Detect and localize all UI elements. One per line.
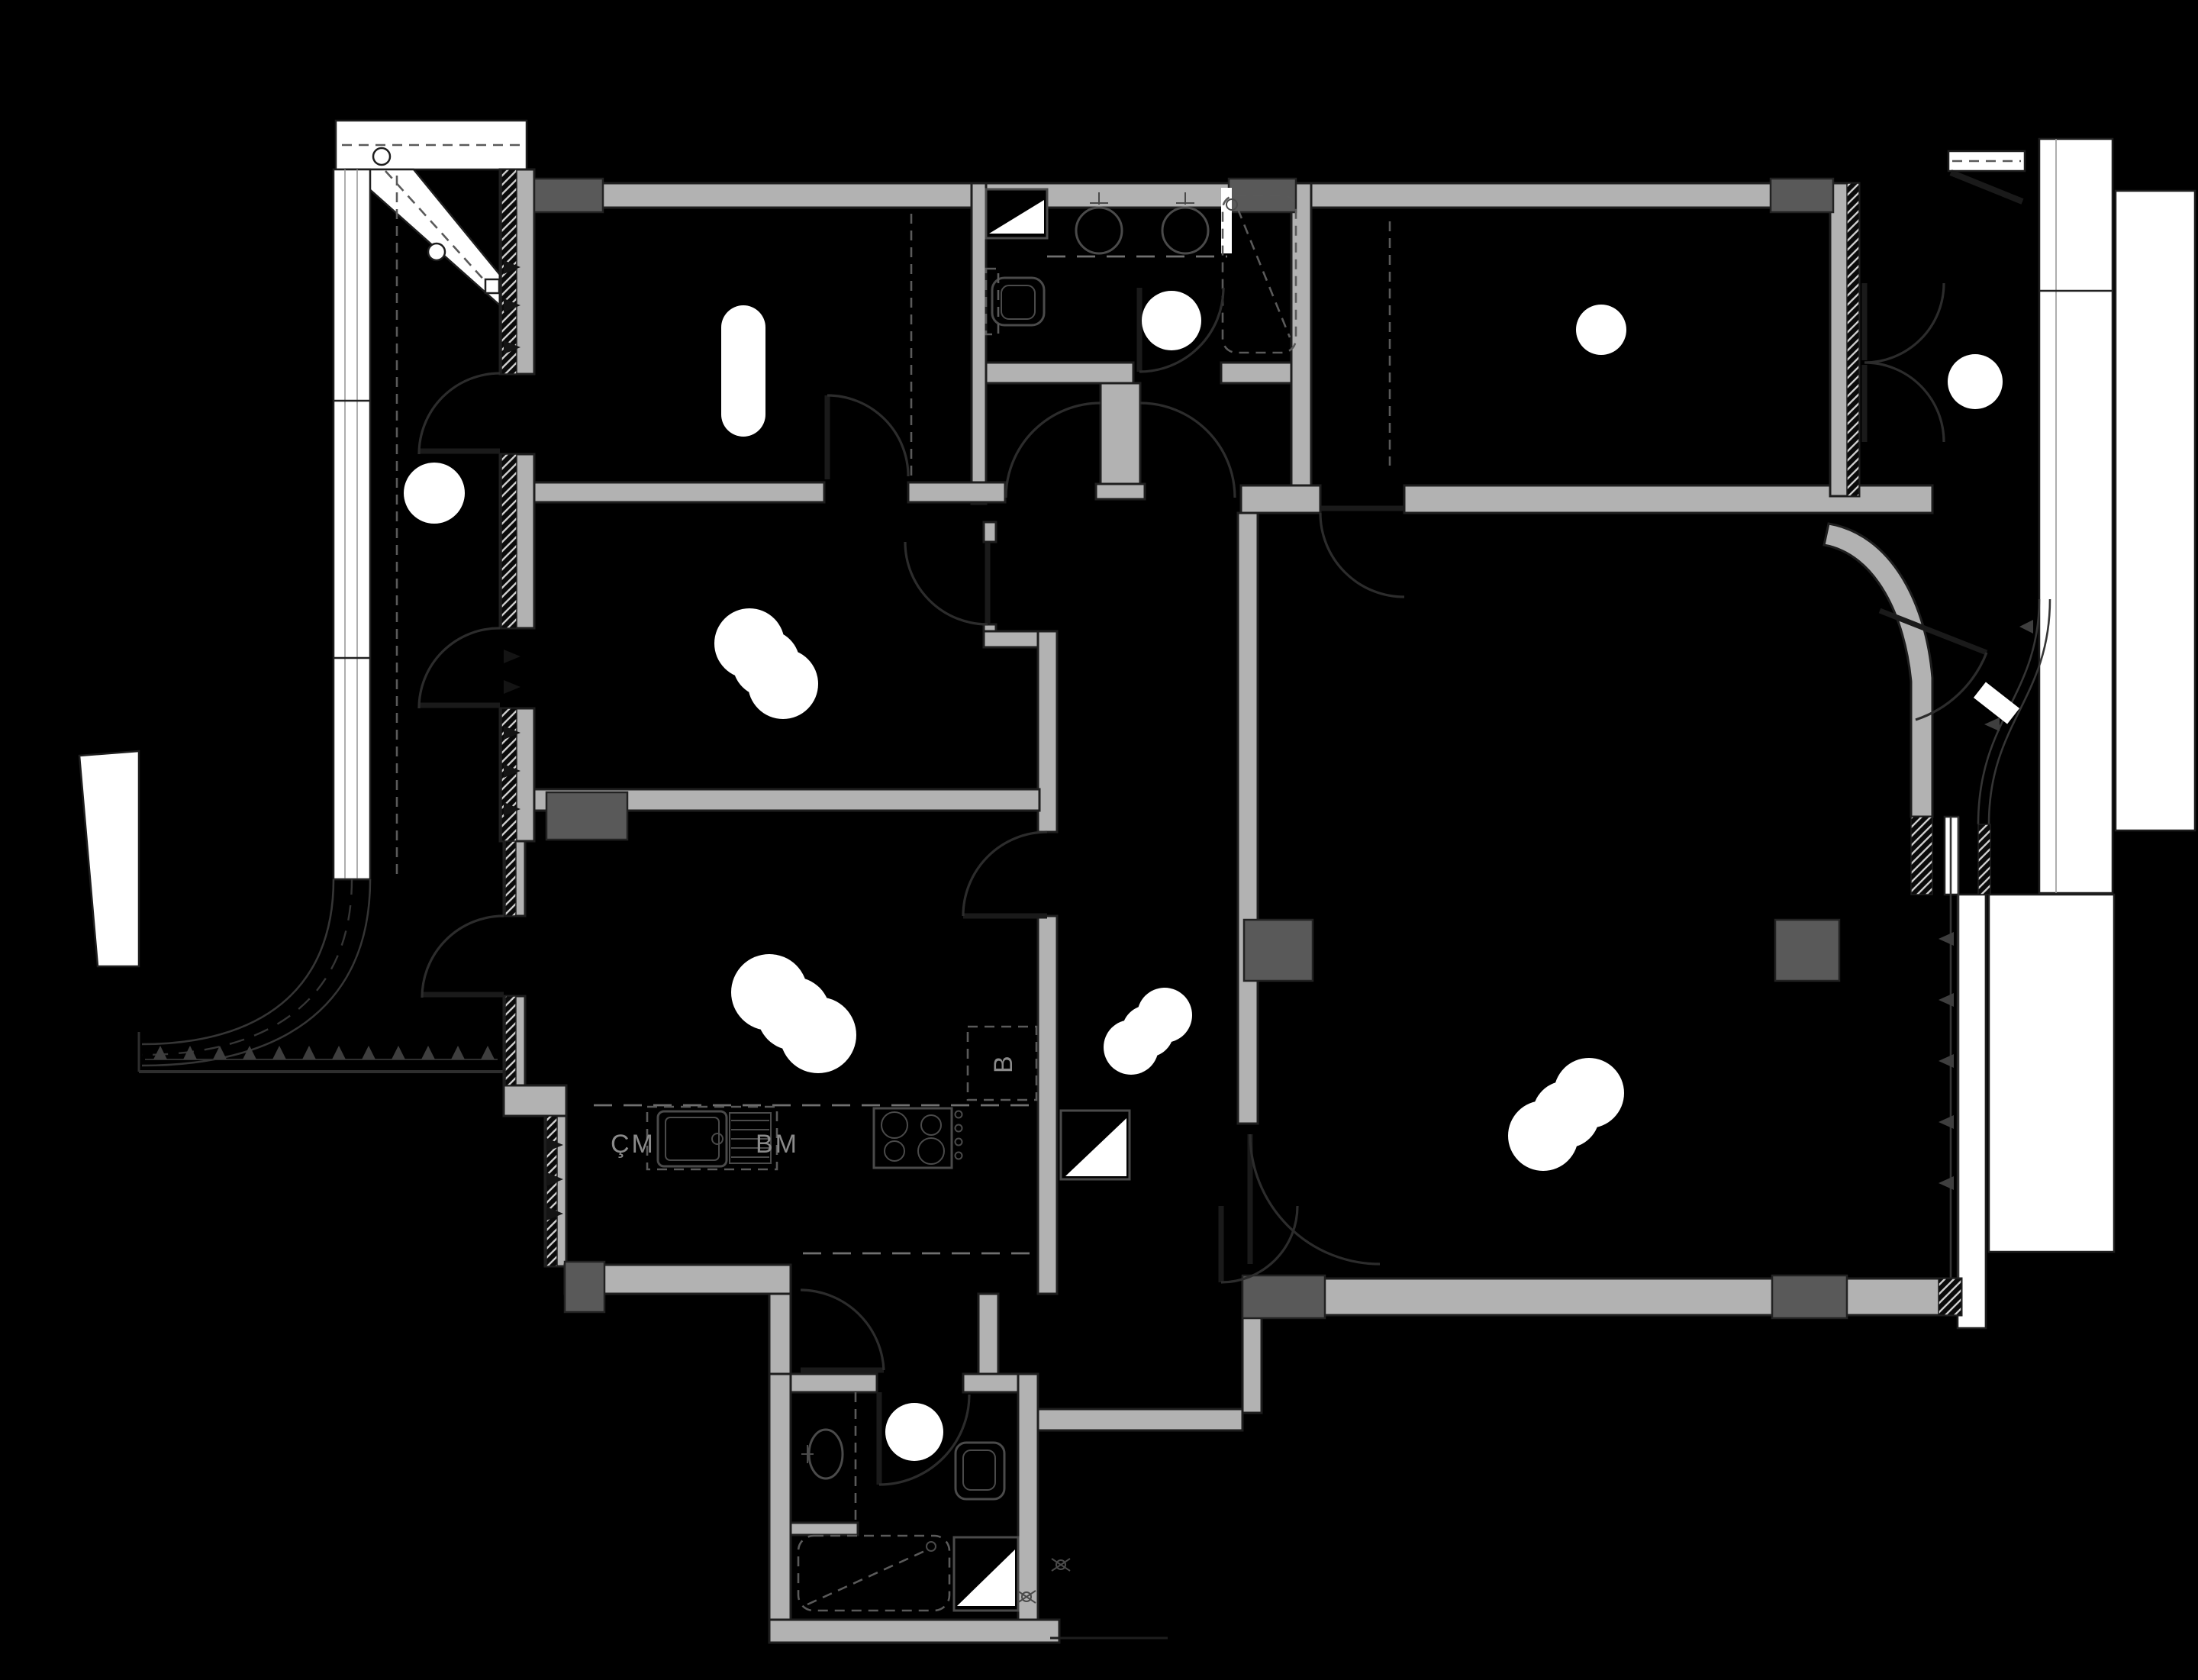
fridge-label: B <box>989 1053 1018 1073</box>
bathroom-east-wall <box>1291 183 1311 485</box>
room1-bottom-wall <box>908 482 1005 502</box>
bath2-east-wall <box>1018 1374 1038 1620</box>
hall-band-wall <box>1241 485 1320 513</box>
lobby-east-wall <box>978 1294 998 1374</box>
column <box>1772 1275 1847 1318</box>
column <box>546 792 627 840</box>
bath2-stub-wall <box>791 1523 858 1535</box>
balcony-post-icon <box>485 279 499 293</box>
redaction-blob <box>404 463 465 524</box>
redaction-blob <box>1142 291 1201 350</box>
dishwasher-label: BM <box>756 1130 799 1159</box>
bath2-north-wall <box>963 1374 1018 1392</box>
corridor-left-wall <box>1038 916 1057 1294</box>
bath2-south-wall <box>769 1620 1059 1643</box>
redaction-blob <box>721 305 765 437</box>
washing-machine-label: ÇM <box>611 1130 656 1159</box>
bathroom-south-wall <box>986 363 1133 383</box>
lobby-west-wall <box>769 1294 791 1374</box>
corridor-right-wall <box>1238 513 1258 1124</box>
floor-plan-page: ÇM BM B <box>0 0 2198 1680</box>
living-south-wall <box>1242 1279 1961 1315</box>
hall-stub-foot <box>1096 484 1145 499</box>
room2-right-wall <box>984 522 996 542</box>
room1-bottom-wall <box>534 482 824 502</box>
column <box>565 1262 604 1312</box>
floor-plan-drawing: ÇM BM B <box>0 0 2198 1680</box>
left-wall-jog <box>504 1085 566 1116</box>
living-west-wall <box>1242 1315 1262 1413</box>
balcony-post-icon <box>428 243 445 260</box>
redaction-blob <box>1576 305 1626 355</box>
redaction-blob <box>885 1403 943 1461</box>
bath-living-band <box>1018 1409 1242 1430</box>
hall-stub-wall <box>1101 383 1140 484</box>
bath2-west-wall <box>769 1374 791 1620</box>
redaction-blob <box>1948 354 2003 409</box>
top-wall <box>527 183 1832 208</box>
column <box>1244 920 1313 981</box>
column <box>1775 920 1839 981</box>
bath2-north-wall <box>791 1374 877 1392</box>
column <box>1771 179 1833 212</box>
rooms-right-wall <box>972 183 986 504</box>
column <box>534 179 603 212</box>
corridor-left-wall <box>1038 631 1057 832</box>
balcony-post-icon <box>373 148 390 165</box>
column <box>1242 1275 1325 1318</box>
